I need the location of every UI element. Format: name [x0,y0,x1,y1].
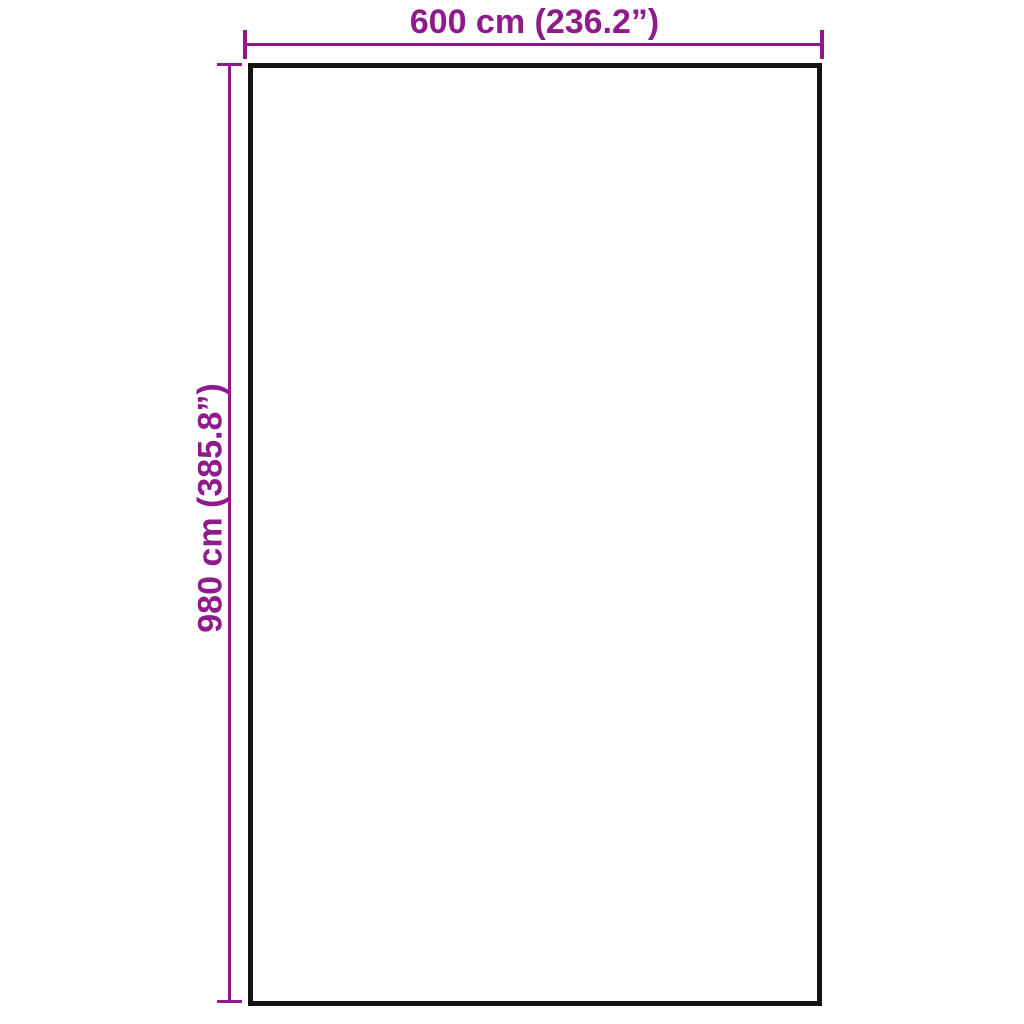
height-dimension-tick-bottom [217,1000,242,1003]
width-dimension-line [245,43,824,46]
product-outline-rectangle [248,63,822,1006]
dimension-diagram: 600 cm (236.2”) 980 cm (385.8”) [0,0,1024,1024]
height-dimension-tick-top [217,63,242,66]
height-dimension-label: 980 cm (385.8”) [192,383,231,633]
width-dimension-label: 600 cm (236.2”) [245,3,824,41]
